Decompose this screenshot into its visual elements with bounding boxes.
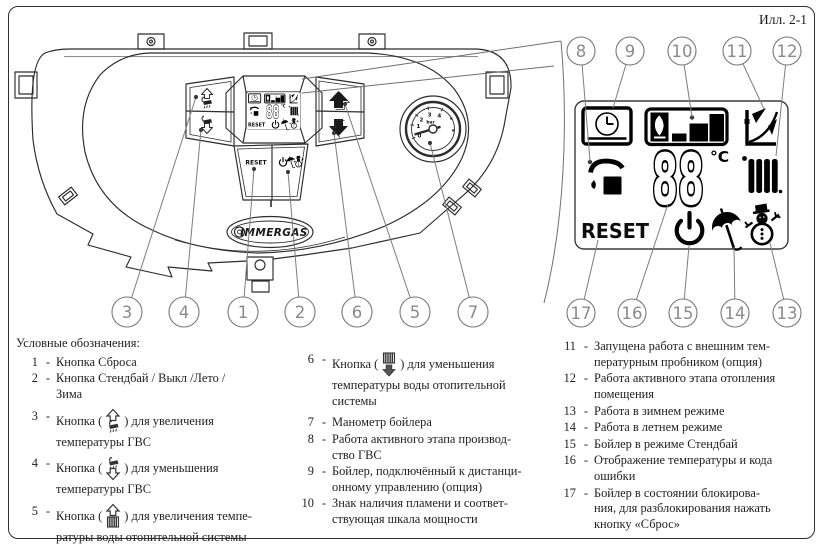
left-clip	[138, 34, 164, 49]
legend-item-12: 12-Работа активного этапа отопления поме…	[554, 371, 812, 402]
gauge-tick: 0	[418, 134, 422, 140]
clip	[59, 187, 78, 205]
callout-number: 11	[727, 42, 748, 61]
legend-item-8: 8-Работа активного этапа производ- ство …	[292, 432, 554, 463]
gauge-tick: 3	[428, 113, 432, 119]
gauge-tick: 4	[437, 114, 441, 120]
gauge-unit: bar	[426, 120, 435, 126]
legend-column-2: 6- Кнопка () для уменьшения температуры …	[292, 352, 554, 529]
pressure-gauge	[400, 96, 466, 162]
callout-number: 15	[673, 304, 694, 323]
callout-number: 4	[179, 303, 190, 322]
callout-number: 12	[777, 42, 798, 61]
clip	[463, 179, 482, 197]
display-callouts-bottom: 17 16 15 14 13	[567, 299, 801, 327]
temperature-display: 88	[652, 139, 704, 221]
legend-item-2: 2-Кнопка Стендбай / Выкл /Лето / Зима	[16, 371, 284, 402]
callout-number: 1	[238, 303, 249, 322]
callout-number: 13	[777, 304, 798, 323]
callout-number: 17	[571, 304, 592, 323]
legend-title: Условные обозначения:	[16, 336, 284, 352]
dhw-temp-up-icon	[103, 408, 123, 434]
legend-item-9: 9-Бойлер, подключённый к дистанци- онном…	[292, 464, 554, 495]
figure-drawing: 0 1 2 3 4 bar RESET IMMERGAS	[0, 0, 823, 340]
dhw-up-button	[202, 89, 213, 109]
legend-item-5: 5- Кнопка () для увеличения темпе- ратур…	[16, 504, 284, 546]
lcd-display-detail: 88 °C RESET	[575, 101, 788, 255]
dhw-down-button	[202, 116, 213, 134]
legend-item-17: 17-Бойлер в состоянии блокирова- ния, дл…	[554, 486, 812, 533]
callout-number: 14	[725, 304, 746, 323]
legend-item-13: 13-Работа в зимнем режиме	[554, 404, 812, 420]
dhw-buttons	[186, 77, 234, 146]
callout-number: 9	[625, 42, 636, 61]
mini-lcd-content	[247, 92, 301, 131]
heating-temp-down-icon	[379, 351, 399, 377]
callout-number: 3	[122, 303, 133, 322]
legend-item-1: 1-Кнопка Сброса	[16, 355, 284, 371]
callout-number: 10	[672, 42, 693, 61]
right-side-bracket	[486, 72, 508, 98]
legend-item-10: 10-Знак наличия пламени и соответ- ствую…	[292, 496, 554, 527]
bottom-tab	[247, 257, 273, 292]
legend-item-7: 7-Манометр бойлера	[292, 415, 554, 431]
callout-number: 2	[295, 303, 306, 322]
dhw-temp-down-icon	[103, 455, 123, 481]
callout-number: 5	[410, 303, 421, 322]
legend-item-4: 4- Кнопка () для уменьшения температуры …	[16, 456, 284, 498]
reset-mode-buttons	[234, 144, 308, 207]
display-callouts-top: 8 9 10 11 12	[567, 37, 801, 65]
callout-number: 7	[468, 303, 479, 322]
legend-column-1: Условные обозначения: 1-Кнопка Сброса 2-…	[16, 336, 284, 551]
manual-page: { "figure_label": "Илл. 2-1", "brand": "…	[0, 0, 823, 545]
callout-number: 8	[576, 42, 587, 61]
legend-item-14: 14-Работа в летнем режиме	[554, 420, 812, 436]
gauge-tick: 2	[420, 118, 424, 124]
panel-callouts: 3 4 1 2 6 5 7	[112, 297, 488, 327]
gauge-tick: 1	[416, 124, 420, 130]
legend-item-16: 16-Отображение температуры и кода ошибки	[554, 453, 812, 484]
gauge-scale: 0 1 2 3 4 bar	[416, 113, 441, 140]
callout-number: 6	[352, 303, 363, 322]
legend-item-6: 6- Кнопка () для уменьшения температуры …	[292, 352, 554, 409]
legend-item-11: 11-Запущена работа с внешним тем- перату…	[554, 339, 812, 370]
panel-reset-label: RESET	[245, 160, 267, 167]
legend-item-15: 15-Бойлер в режиме Стендбай	[554, 437, 812, 453]
brand-logo-text: IMMERGAS	[240, 227, 308, 239]
legend-column-3: 11-Запущена работа с внешним тем- перату…	[554, 338, 812, 534]
legend-item-3: 3- Кнопка () для увеличения температуры …	[16, 409, 284, 451]
right-clip	[359, 34, 385, 49]
display-reset-label: RESET	[581, 219, 649, 243]
leader-dots	[194, 95, 432, 174]
callout-number: 16	[622, 304, 643, 323]
top-mount-tab	[244, 33, 272, 49]
heating-temp-up-icon	[103, 503, 123, 529]
temperature-unit: °C	[710, 148, 729, 166]
